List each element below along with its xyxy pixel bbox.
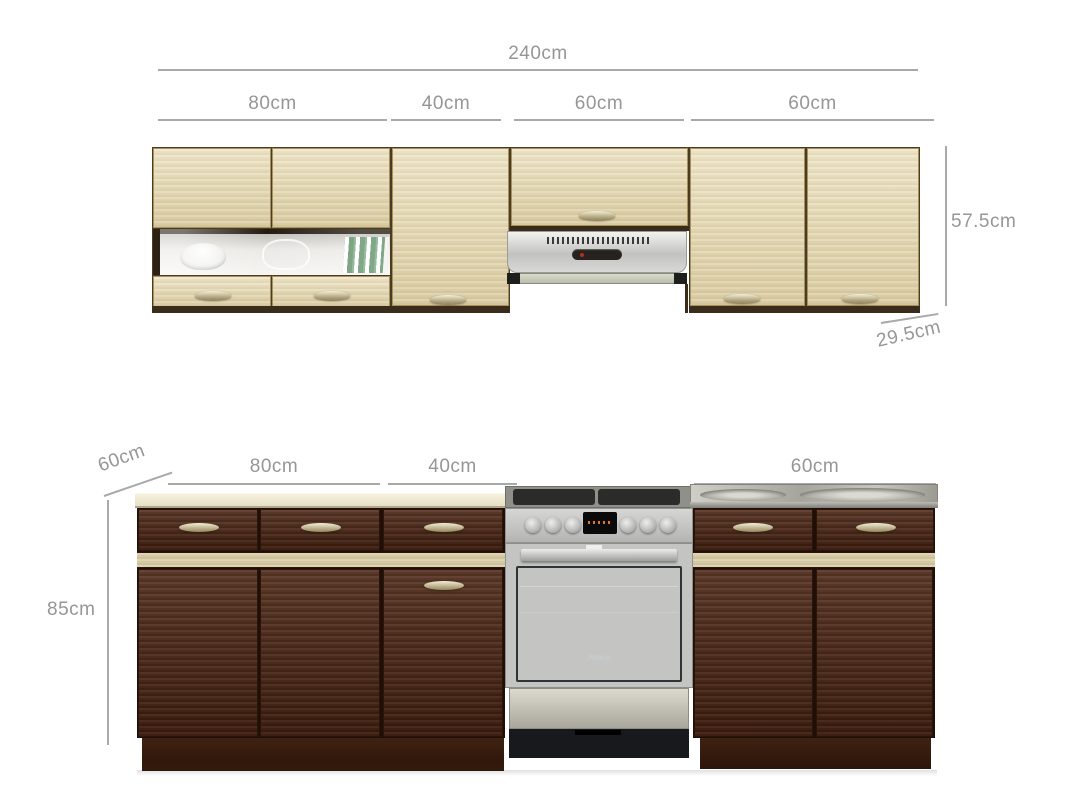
- floor-shadow: [137, 770, 937, 776]
- hood-vents: [547, 237, 649, 244]
- dim-upper-height-label: 57.5cm: [951, 211, 1016, 233]
- dim-lower-40-line: [388, 483, 517, 485]
- oven-brand-label: Amica: [516, 653, 682, 662]
- dim-total-width-label: 240cm: [158, 43, 918, 65]
- wall-cabinet-door: [272, 148, 390, 228]
- drawer-handle: [179, 523, 219, 532]
- drawer-handle: [856, 523, 896, 532]
- wall-cabinet-door: [807, 148, 919, 306]
- oven-handle: [521, 549, 677, 561]
- door-handle: [424, 581, 464, 590]
- cooker-knob: [525, 517, 541, 533]
- dim-upper-60a-label: 60cm: [514, 93, 684, 115]
- accent-stripe: [693, 552, 935, 568]
- dim-lower-80-line: [168, 483, 380, 485]
- cooker-knob: [620, 517, 636, 533]
- cooker-display-digits: [588, 521, 612, 524]
- cabinet-bottom-edge: [689, 306, 920, 313]
- cooker-knob: [565, 517, 581, 533]
- wall-cabinet-door: [153, 148, 271, 228]
- hob-grate: [598, 489, 680, 505]
- kitchen-dimension-diagram: 240cm 80cm 40cm 60cm 60cm 57.5cm 29.5cm: [0, 0, 1079, 809]
- dim-upper-80-label: 80cm: [158, 93, 387, 115]
- hob-grate: [513, 489, 595, 505]
- dim-lower-40-label: 40cm: [388, 456, 517, 478]
- dim-total-width-line: [158, 69, 918, 71]
- accent-stripe: [137, 552, 505, 568]
- dim-lower-80-label: 80cm: [168, 456, 380, 478]
- cabinet-bottom-edge: [391, 306, 510, 313]
- base-cabinet-door: [694, 569, 813, 737]
- dim-lower-height-label: 85cm: [47, 599, 95, 621]
- door-handle: [724, 294, 760, 303]
- cabinet-side-edge: [685, 284, 688, 313]
- sink-front-edge: [690, 502, 938, 508]
- dim-lower-depth-label: 60cm: [95, 440, 148, 477]
- door-handle: [842, 294, 878, 303]
- base-cabinet-door: [260, 569, 380, 737]
- dim-lower-60-label: 60cm: [694, 456, 936, 478]
- dim-lower-height-line: [107, 500, 109, 745]
- door-handle: [314, 291, 350, 300]
- base-cabinet-door: [816, 569, 933, 737]
- display-shelf-edge: [153, 229, 160, 275]
- oven-glass: [516, 566, 682, 682]
- dim-upper-60b-line: [691, 119, 934, 121]
- countertop: [135, 493, 507, 508]
- dim-upper-80-line: [158, 119, 387, 121]
- drawer-handle: [733, 523, 773, 532]
- base-cabinet-door: [383, 569, 503, 737]
- door-handle: [579, 211, 615, 220]
- hood-power-light: [580, 253, 584, 257]
- cooker-knob: [545, 517, 561, 533]
- dim-upper-height-line: [945, 146, 947, 306]
- hood-visor-cap: [674, 273, 687, 284]
- drawer-handle: [424, 523, 464, 532]
- dim-upper-60a-line: [514, 119, 684, 121]
- cooker-knob: [640, 517, 656, 533]
- drawer-handle: [301, 523, 341, 532]
- cooker-base-notch: [575, 730, 621, 735]
- cooker-knob: [660, 517, 676, 533]
- hood-visor-cap: [507, 273, 520, 284]
- plinth: [142, 738, 504, 771]
- base-cabinet-door: [138, 569, 258, 737]
- hood-visor: [507, 273, 687, 284]
- dim-upper-40-label: 40cm: [391, 93, 501, 115]
- door-handle: [195, 291, 231, 300]
- sink-bowl: [700, 489, 786, 501]
- cabinet-bottom-edge: [152, 306, 391, 313]
- wall-cabinet-door: [392, 148, 509, 306]
- dim-upper-60b-label: 60cm: [691, 93, 934, 115]
- display-glass-reflection: [160, 229, 390, 275]
- wall-cabinet-door: [690, 148, 805, 306]
- oven-glass-reflection: [520, 586, 678, 587]
- door-handle: [430, 295, 466, 304]
- plinth: [700, 738, 931, 769]
- dim-upper-40-line: [391, 119, 501, 121]
- cooker-storage-drawer: [509, 688, 689, 729]
- oven-glass-reflection: [520, 612, 678, 613]
- sink-bowl: [800, 488, 925, 502]
